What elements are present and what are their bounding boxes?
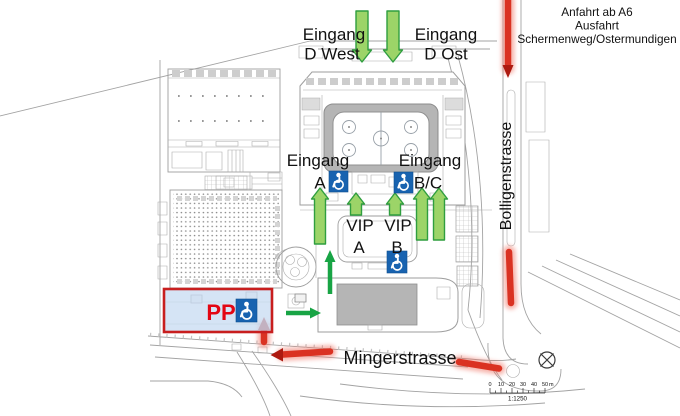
vip-detail [352, 263, 392, 269]
entrance-bc-label-2: B/C [414, 174, 442, 193]
wing-block [302, 98, 320, 110]
scale-ratio: 1:1250 [508, 396, 527, 403]
note-line-2: Ausfahrt [575, 19, 620, 33]
lot-dot-grid [173, 193, 279, 285]
wheelchair-icon-entrance-a [329, 171, 348, 192]
route-band-bolligen-south [509, 252, 511, 303]
arrow-up-entrance-bc-1-icon [414, 188, 431, 240]
scale-tick-40: 40 [531, 382, 537, 388]
entrance-d-west-label-1: Eingang [303, 25, 365, 44]
route-band-minger-west [283, 352, 330, 355]
grid-building [457, 266, 478, 286]
ramp-circle [298, 258, 307, 267]
south-hall-roof [337, 284, 417, 325]
vip-b-label-2: B [391, 238, 402, 257]
wheelchair-icon-pp [236, 299, 257, 322]
entrance-d-west-label-2: D West [304, 45, 360, 64]
entrance-a-label-2: A [314, 174, 326, 193]
arrow-up-entrance-bc-2-icon [431, 188, 448, 240]
hall-column-grid [178, 96, 274, 121]
vip-a-label-2: A [353, 238, 365, 257]
junction-circle [507, 365, 520, 378]
open-lot [158, 190, 282, 288]
exhibition-hall [168, 69, 282, 190]
arrow-up-entrance-a-icon [312, 188, 329, 244]
pp-label: PP [206, 300, 235, 325]
scale-tick-30: 30 [520, 382, 526, 388]
hatched-block [205, 176, 247, 190]
vip-b-label-1: VIP [384, 216, 411, 235]
entrance-d-ost-label-1: Eingang [415, 25, 477, 44]
site-plan-svg: Eingang D West Eingang D Ost Eingang A E… [0, 0, 680, 416]
parcel-outlines [526, 82, 549, 232]
wing-block [445, 98, 463, 110]
scale-tick-50: 50 [542, 382, 548, 388]
route-arrow-up-head-icon [325, 250, 336, 262]
east-buildings [456, 206, 478, 286]
lot-side-rects [158, 202, 167, 279]
street-label-bolligenstrasse: Bolligenstrasse [498, 122, 515, 231]
grid-building [456, 236, 478, 262]
note-line-1: Anfahrt ab A6 [561, 5, 633, 19]
scale-tick-10: 10 [498, 382, 504, 388]
venue-access-plan: Eingang D West Eingang D Ost Eingang A E… [0, 0, 680, 416]
entrance-bc-label-1: Eingang [399, 151, 461, 170]
ramp-circle [286, 256, 295, 265]
scale-unit: m [549, 382, 554, 388]
scale-tick-0: 0 [488, 382, 491, 388]
arrow-down-d-ost-icon [384, 11, 403, 62]
vip-a-label-1: VIP [346, 216, 373, 235]
hall-inner-lines [168, 78, 280, 147]
entrance-d-ost-label-2: D Ost [424, 45, 468, 64]
crossed-circle-symbol [539, 352, 555, 368]
scale-tick-20: 20 [509, 382, 515, 388]
note-line-3: Schermenweg/Ostermundigen [517, 32, 676, 46]
red-arrowhead-left-icon [271, 348, 284, 362]
ramp-circle [291, 268, 300, 277]
street-label-mingerstrasse: Mingerstrasse [343, 348, 456, 368]
entrance-a-label-1: Eingang [287, 151, 349, 170]
wheelchair-icon-entrance-bc [394, 172, 413, 193]
